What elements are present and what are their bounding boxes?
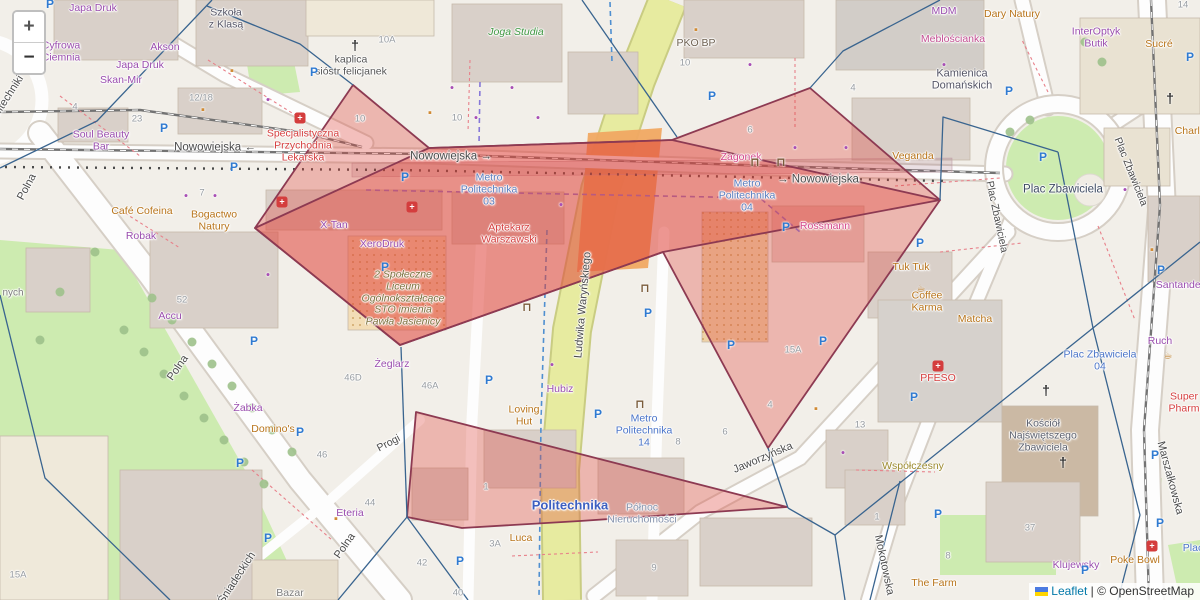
footpath-line: [1098, 226, 1135, 320]
building: [252, 560, 338, 600]
tree: [268, 426, 277, 435]
building: [306, 0, 434, 36]
building: [1104, 128, 1170, 186]
building: [986, 482, 1080, 562]
building: [58, 108, 128, 142]
tree: [240, 458, 249, 467]
tree: [1006, 128, 1015, 137]
voronoi-line: [407, 517, 468, 600]
building: [836, 0, 984, 70]
building: [178, 88, 262, 134]
osm-attribution-text: © OpenStreetMap: [1097, 584, 1194, 598]
tree: [1098, 58, 1107, 67]
building: [26, 248, 90, 312]
ukraine-flag-icon: [1035, 587, 1048, 596]
selection-polygon-south-area: [407, 412, 787, 528]
tree: [91, 248, 100, 257]
building: [150, 232, 278, 328]
building: [452, 4, 562, 82]
building: [878, 300, 1002, 422]
bus-route-line: [479, 82, 480, 145]
tree: [288, 448, 297, 457]
building: [684, 0, 804, 58]
zoom-out-button[interactable]: −: [14, 43, 44, 73]
tree: [248, 404, 257, 413]
building: [568, 52, 638, 114]
tree: [220, 436, 229, 445]
tree: [200, 414, 209, 423]
building: [54, 0, 178, 60]
zoom-control: + −: [12, 10, 46, 75]
tree: [160, 370, 169, 379]
tree: [140, 348, 149, 357]
tree: [120, 326, 129, 335]
map-canvas[interactable]: Nowowiejska ←Nowowiejska →→ NowowiejskaP…: [0, 0, 1200, 600]
attribution-bar: Leaflet | © OpenStreetMap: [1029, 583, 1200, 600]
tree: [36, 336, 45, 345]
building: [700, 518, 812, 586]
tree: [208, 360, 217, 369]
tree: [188, 338, 197, 347]
tree: [260, 480, 269, 489]
voronoi-line: [835, 535, 845, 600]
building: [0, 436, 108, 600]
building: [1080, 18, 1200, 114]
leaflet-link[interactable]: Leaflet: [1051, 584, 1087, 598]
tree: [168, 316, 177, 325]
building: [120, 470, 262, 600]
map-tiles: [0, 0, 1200, 600]
tree: [1026, 116, 1035, 125]
tree: [228, 382, 237, 391]
zoom-in-button[interactable]: +: [14, 12, 44, 43]
tree: [56, 288, 65, 297]
fountain-circle: [1074, 174, 1106, 206]
road: [1022, 0, 1048, 108]
tree: [1081, 38, 1090, 47]
tree: [148, 294, 157, 303]
tree: [180, 392, 189, 401]
building: [196, 0, 308, 66]
attribution-separator: |: [1087, 584, 1097, 598]
building: [616, 540, 688, 596]
